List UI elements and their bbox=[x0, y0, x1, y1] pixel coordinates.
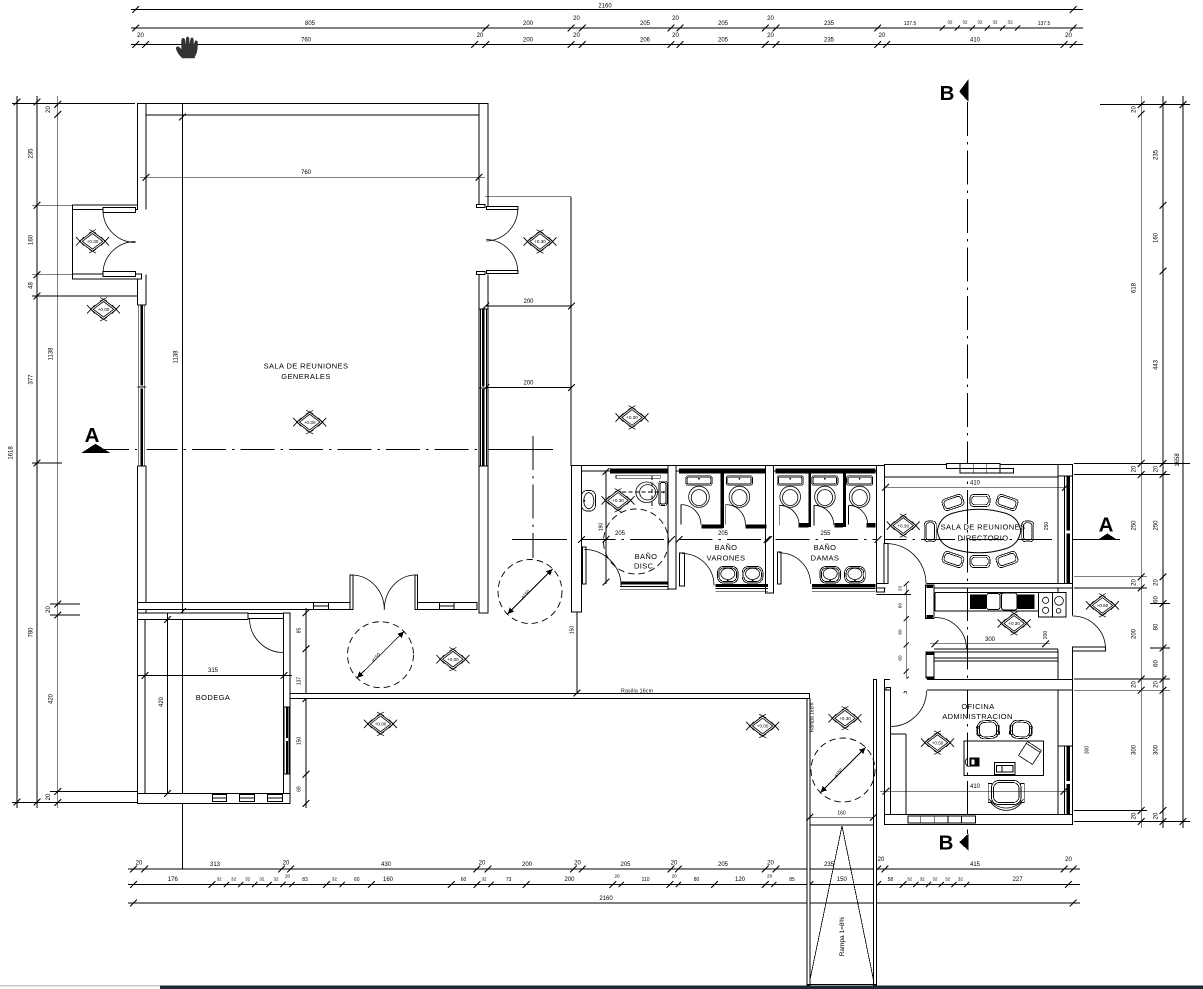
svg-text:300: 300 bbox=[1085, 746, 1091, 755]
svg-text:20: 20 bbox=[878, 857, 885, 863]
svg-text:80: 80 bbox=[694, 877, 700, 883]
svg-text:20: 20 bbox=[573, 16, 580, 22]
svg-text:32: 32 bbox=[332, 877, 338, 882]
svg-text:200: 200 bbox=[523, 21, 534, 27]
svg-text:68: 68 bbox=[297, 786, 303, 792]
svg-text:20: 20 bbox=[767, 33, 774, 39]
svg-text:20: 20 bbox=[1132, 579, 1138, 586]
svg-text:20: 20 bbox=[898, 586, 903, 592]
svg-text:150: 150 bbox=[837, 877, 848, 883]
svg-text:205: 205 bbox=[718, 21, 729, 27]
svg-text:377: 377 bbox=[29, 374, 35, 385]
svg-text:48: 48 bbox=[29, 282, 35, 289]
svg-text:60: 60 bbox=[898, 655, 903, 661]
svg-text:205: 205 bbox=[718, 531, 729, 537]
svg-text:205: 205 bbox=[718, 862, 729, 868]
svg-text:DIRECTORIO: DIRECTORIO bbox=[958, 534, 1009, 543]
svg-text:32: 32 bbox=[947, 20, 953, 25]
svg-text:VARONES: VARONES bbox=[707, 554, 746, 563]
svg-text:B: B bbox=[940, 82, 955, 105]
svg-text:200: 200 bbox=[523, 38, 534, 44]
svg-text:60: 60 bbox=[898, 629, 903, 635]
svg-text:32: 32 bbox=[259, 877, 265, 882]
svg-text:415: 415 bbox=[970, 862, 981, 868]
svg-text:32: 32 bbox=[932, 877, 938, 882]
svg-text:BAÑO: BAÑO bbox=[715, 543, 738, 552]
svg-text:235: 235 bbox=[824, 21, 835, 27]
svg-text:235: 235 bbox=[1154, 149, 1160, 160]
svg-text:200: 200 bbox=[1043, 631, 1049, 640]
svg-text:A: A bbox=[85, 424, 100, 447]
svg-text:20: 20 bbox=[1132, 465, 1138, 472]
svg-text:313: 313 bbox=[210, 862, 221, 868]
svg-text:20: 20 bbox=[574, 861, 581, 867]
svg-text:Rampa 1=8%: Rampa 1=8% bbox=[839, 917, 846, 957]
svg-text:160: 160 bbox=[1154, 232, 1160, 243]
svg-text:20: 20 bbox=[283, 861, 290, 867]
svg-text:+0.50: +0.50 bbox=[932, 740, 944, 745]
svg-text:32: 32 bbox=[977, 20, 983, 25]
svg-text:1658: 1658 bbox=[1175, 453, 1181, 467]
svg-text:+0.00: +0.00 bbox=[757, 724, 769, 729]
svg-text:300: 300 bbox=[1154, 744, 1160, 755]
svg-text:300: 300 bbox=[1132, 744, 1138, 755]
svg-text:60: 60 bbox=[354, 877, 360, 883]
svg-text:60: 60 bbox=[1154, 660, 1160, 667]
svg-text:32: 32 bbox=[231, 877, 237, 882]
svg-text:+0.30: +0.30 bbox=[534, 239, 546, 244]
svg-text:60: 60 bbox=[461, 877, 467, 883]
svg-text:206: 206 bbox=[640, 38, 651, 44]
svg-text:110: 110 bbox=[642, 877, 650, 883]
svg-text:20: 20 bbox=[672, 874, 678, 879]
svg-text:200: 200 bbox=[1132, 628, 1138, 639]
svg-text:58: 58 bbox=[888, 877, 894, 883]
svg-text:+0.00: +0.00 bbox=[375, 722, 387, 727]
svg-text:760: 760 bbox=[301, 38, 312, 44]
svg-text:BAÑO: BAÑO bbox=[635, 552, 658, 561]
svg-text:20: 20 bbox=[672, 33, 679, 39]
svg-text:20: 20 bbox=[285, 874, 291, 879]
svg-text:160: 160 bbox=[29, 234, 35, 245]
svg-text:137.5: 137.5 bbox=[904, 21, 917, 27]
svg-text:20: 20 bbox=[46, 606, 52, 613]
svg-text:227: 227 bbox=[1013, 877, 1024, 883]
svg-text:20: 20 bbox=[1132, 812, 1138, 819]
svg-text:20: 20 bbox=[136, 861, 143, 867]
svg-text:20: 20 bbox=[1065, 857, 1072, 863]
svg-text:235: 235 bbox=[29, 148, 35, 159]
svg-text:300: 300 bbox=[985, 637, 996, 643]
svg-text:20: 20 bbox=[672, 16, 679, 22]
svg-text:20: 20 bbox=[879, 33, 886, 39]
svg-text:20: 20 bbox=[1132, 106, 1138, 113]
svg-text:32: 32 bbox=[920, 877, 926, 882]
svg-text:205: 205 bbox=[640, 21, 651, 27]
svg-text:73: 73 bbox=[506, 877, 512, 883]
svg-text:160: 160 bbox=[837, 810, 846, 816]
svg-text:150: 150 bbox=[570, 626, 576, 635]
svg-text:190: 190 bbox=[599, 523, 605, 532]
svg-text:A: A bbox=[1099, 514, 1114, 537]
svg-text:1138: 1138 bbox=[49, 347, 55, 361]
svg-text:+0.00: +0.00 bbox=[98, 307, 110, 312]
svg-text:235: 235 bbox=[824, 38, 835, 44]
svg-text:420: 420 bbox=[159, 696, 165, 707]
svg-text:760: 760 bbox=[301, 170, 312, 176]
svg-text:83: 83 bbox=[302, 877, 308, 883]
svg-text:20: 20 bbox=[1065, 33, 1072, 39]
svg-text:430: 430 bbox=[381, 862, 392, 868]
svg-text:20: 20 bbox=[614, 874, 620, 879]
svg-text:+0.30: +0.30 bbox=[87, 239, 99, 244]
svg-text:60: 60 bbox=[1154, 596, 1160, 603]
svg-text:20: 20 bbox=[46, 793, 52, 800]
svg-text:150: 150 bbox=[297, 737, 303, 746]
svg-text:32: 32 bbox=[273, 877, 279, 882]
svg-text:+0.00: +0.00 bbox=[626, 415, 638, 420]
svg-text:20: 20 bbox=[1154, 579, 1160, 586]
svg-text:32: 32 bbox=[945, 877, 951, 882]
svg-text:+0.00: +0.00 bbox=[447, 657, 459, 662]
svg-text:+0.30: +0.30 bbox=[897, 523, 909, 528]
svg-text:+0.30: +0.30 bbox=[1008, 621, 1020, 626]
svg-text:32: 32 bbox=[245, 877, 251, 882]
svg-text:SALA DE REUNIONES: SALA DE REUNIONES bbox=[941, 523, 1026, 532]
svg-text:200: 200 bbox=[564, 877, 575, 883]
svg-text:GENERALES: GENERALES bbox=[281, 372, 330, 381]
svg-text:20: 20 bbox=[767, 16, 774, 22]
svg-text:60: 60 bbox=[898, 603, 903, 609]
svg-text:32: 32 bbox=[217, 877, 223, 882]
svg-text:250: 250 bbox=[1044, 522, 1050, 531]
svg-text:20: 20 bbox=[1154, 681, 1160, 688]
svg-text:20: 20 bbox=[479, 861, 486, 867]
svg-text:443: 443 bbox=[1154, 359, 1160, 370]
svg-text:20: 20 bbox=[1154, 465, 1160, 472]
svg-text:137: 137 bbox=[297, 677, 303, 686]
svg-text:205: 205 bbox=[615, 531, 626, 537]
svg-text:160: 160 bbox=[383, 877, 394, 883]
svg-text:32: 32 bbox=[992, 20, 998, 25]
svg-text:250: 250 bbox=[1132, 520, 1138, 531]
svg-text:1138: 1138 bbox=[174, 350, 180, 364]
svg-text:2160: 2160 bbox=[599, 896, 613, 902]
svg-text:420: 420 bbox=[49, 693, 55, 704]
svg-text:Rampa 16cm: Rampa 16cm bbox=[810, 703, 816, 733]
svg-text:2160: 2160 bbox=[598, 4, 612, 10]
svg-text:137.5: 137.5 bbox=[1038, 21, 1051, 27]
svg-text:ADMINISTRACION: ADMINISTRACION bbox=[942, 712, 1013, 721]
svg-text:+0.30: +0.30 bbox=[304, 420, 316, 425]
svg-text:410: 410 bbox=[970, 38, 981, 44]
svg-text:20: 20 bbox=[46, 106, 52, 113]
svg-text:20: 20 bbox=[767, 874, 773, 879]
svg-text:32: 32 bbox=[481, 877, 487, 882]
svg-text:32: 32 bbox=[962, 20, 968, 25]
svg-text:20: 20 bbox=[477, 33, 484, 39]
svg-text:20: 20 bbox=[671, 861, 678, 867]
svg-text:20: 20 bbox=[573, 33, 580, 39]
svg-text:32: 32 bbox=[1008, 20, 1014, 25]
svg-text:SALA DE REUNIONES: SALA DE REUNIONES bbox=[264, 362, 349, 371]
svg-text:176: 176 bbox=[168, 877, 179, 883]
svg-text:780: 780 bbox=[29, 627, 35, 638]
svg-text:120: 120 bbox=[735, 877, 746, 883]
svg-text:205: 205 bbox=[620, 862, 631, 868]
svg-text:618: 618 bbox=[1132, 282, 1138, 293]
svg-text:+0.60: +0.60 bbox=[1097, 603, 1109, 608]
svg-text:410: 410 bbox=[970, 480, 981, 486]
svg-text:85: 85 bbox=[297, 628, 303, 634]
svg-text:85: 85 bbox=[789, 877, 795, 883]
svg-text:BAÑO: BAÑO bbox=[814, 543, 837, 552]
svg-text:200: 200 bbox=[522, 862, 533, 868]
svg-text:32: 32 bbox=[907, 877, 913, 882]
svg-text:B: B bbox=[939, 832, 954, 855]
svg-text:20: 20 bbox=[767, 861, 774, 867]
svg-text:250: 250 bbox=[1154, 520, 1160, 531]
svg-text:410: 410 bbox=[970, 784, 981, 790]
svg-text:200: 200 bbox=[523, 381, 534, 387]
svg-text:20: 20 bbox=[1154, 812, 1160, 819]
svg-text:+0.30: +0.30 bbox=[612, 498, 624, 503]
svg-text:32: 32 bbox=[958, 877, 964, 882]
svg-text:205: 205 bbox=[718, 38, 729, 44]
svg-text:1618: 1618 bbox=[9, 446, 15, 460]
svg-text:+0.30: +0.30 bbox=[839, 716, 851, 721]
svg-text:Rasilla 16cm: Rasilla 16cm bbox=[621, 688, 653, 694]
svg-text:315: 315 bbox=[208, 668, 219, 674]
svg-text:80: 80 bbox=[1154, 623, 1160, 630]
svg-text:200: 200 bbox=[523, 299, 534, 305]
svg-text:OFICINA: OFICINA bbox=[961, 702, 994, 711]
svg-text:DAMAS: DAMAS bbox=[811, 554, 840, 563]
svg-text:20: 20 bbox=[137, 33, 144, 39]
svg-text:BODEGA: BODEGA bbox=[196, 693, 231, 702]
svg-text:805: 805 bbox=[305, 21, 316, 27]
svg-text:255: 255 bbox=[820, 531, 831, 537]
svg-text:20: 20 bbox=[1132, 681, 1138, 688]
